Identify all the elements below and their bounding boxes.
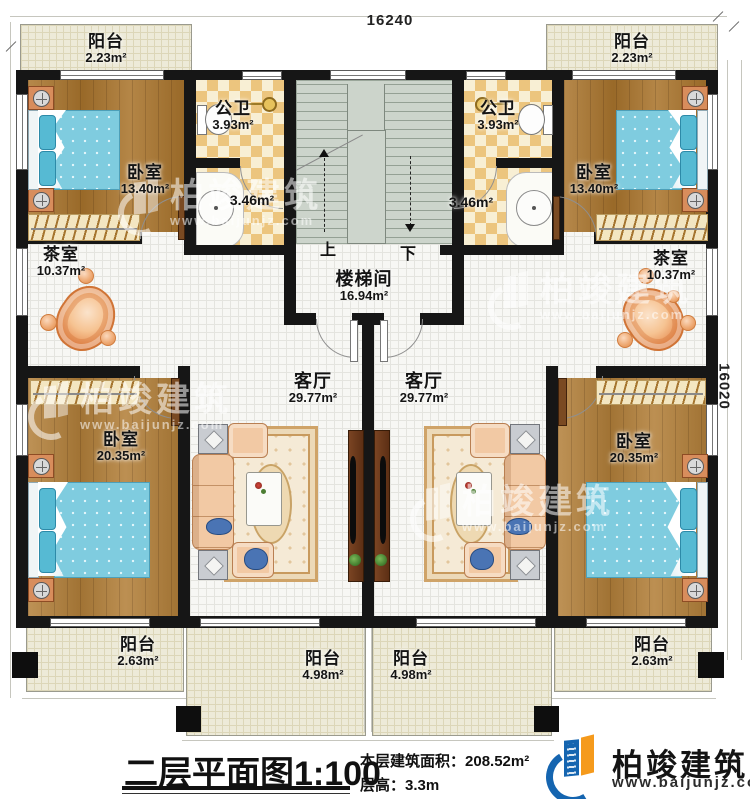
room-label-balcony-bcr: 阳台 4.98m² xyxy=(376,650,446,682)
sofa xyxy=(504,454,546,550)
eave-line-bottom-right xyxy=(548,698,716,699)
bed-headboard xyxy=(28,110,39,190)
room-label-balcony-tr: 阳台 2.23m² xyxy=(582,33,682,65)
bed-pillow xyxy=(680,531,697,573)
bed xyxy=(54,482,150,578)
room-label-balcony-bl: 阳台 2.63m² xyxy=(103,636,173,668)
nightstand xyxy=(682,578,708,602)
window-right-3 xyxy=(706,404,718,456)
tea-stone-pebble xyxy=(617,332,633,348)
room-label-bedroom-bl: 卧室 20.35m² xyxy=(84,431,158,463)
window-bath-left-top xyxy=(242,71,282,80)
nightstand xyxy=(28,86,54,110)
eave-line-bottom-center xyxy=(182,740,554,741)
tv xyxy=(380,456,386,544)
nightstand xyxy=(682,188,708,212)
window-left-1 xyxy=(16,94,28,170)
balcony-divider-center-b xyxy=(371,628,372,732)
door-leaf-entry-left xyxy=(350,320,358,362)
window-balcony-door-tr xyxy=(572,70,676,80)
door-leaf-bedroom-bl xyxy=(171,378,180,426)
window-living-l-balcony-door xyxy=(200,618,320,627)
dim-tick-top-right-2 xyxy=(729,21,740,32)
wardrobe xyxy=(28,214,140,241)
wall-bedroom-bl-top xyxy=(16,366,140,378)
bed-pillow xyxy=(39,151,56,186)
nightstand xyxy=(28,188,54,212)
room-label-balcony-br: 阳台 2.63m² xyxy=(617,636,687,668)
wall-stair-left xyxy=(284,70,296,325)
eave-line-right-2 xyxy=(741,60,742,660)
door-leaf-bedroom-br xyxy=(558,378,567,426)
tea-stone-pebble xyxy=(100,330,116,346)
wall-bedroom-br-left xyxy=(546,366,558,628)
wall-bath-right-bottom xyxy=(440,245,552,255)
nightstand xyxy=(28,454,54,478)
bed-pillow xyxy=(39,115,56,150)
brand-url: www.baijunjz.com xyxy=(612,774,750,791)
room-label-living-r: 客厅 29.77m² xyxy=(389,372,459,405)
wall-corridor-stub-right xyxy=(420,313,464,325)
wardrobe xyxy=(596,380,706,405)
floor-plan: 16240 16020 xyxy=(0,0,750,799)
window-bath-right-top xyxy=(466,71,506,80)
person-figure xyxy=(470,548,494,570)
sofa xyxy=(192,454,234,550)
room-label-bedroom-tr: 卧室 13.40m² xyxy=(556,164,632,196)
wall-bedroom-br-top xyxy=(596,366,718,378)
stair-flight-right xyxy=(384,84,453,242)
bed xyxy=(586,482,682,578)
eave-line-bottom-left xyxy=(22,698,190,699)
room-label-tea-l: 茶室 10.37m² xyxy=(18,246,104,278)
window-bedroom-br-bottom xyxy=(586,618,686,627)
tea-stone-pebble xyxy=(667,290,680,303)
bed-pillow xyxy=(680,488,697,530)
room-label-bedroom-tl: 卧室 13.40m² xyxy=(107,164,183,196)
basin-right xyxy=(516,190,552,226)
room-label-living-l: 客厅 29.77m² xyxy=(278,372,348,405)
door-leaf-entry-right xyxy=(380,320,388,362)
plant xyxy=(375,554,387,566)
nightstand xyxy=(682,454,708,478)
wall-bath-right-mid xyxy=(496,158,552,168)
bed-pillow xyxy=(39,488,56,530)
wall-bath-left-mid xyxy=(184,158,240,168)
eave-line-left xyxy=(10,22,11,698)
wall-bath-left-bottom xyxy=(184,245,296,255)
bed-headboard xyxy=(697,482,708,578)
dimension-right: 16020 xyxy=(716,349,733,425)
balcony-post-right xyxy=(698,652,724,678)
dimension-top: 16240 xyxy=(345,12,435,29)
side-table xyxy=(198,424,228,454)
title-underline-thin xyxy=(122,793,350,794)
brand-logo-icon xyxy=(546,734,606,796)
balcony-post-left xyxy=(12,652,38,678)
armchair xyxy=(228,423,268,458)
side-table xyxy=(510,550,540,580)
window-living-r-balcony-door xyxy=(416,618,536,627)
bed-headboard xyxy=(28,482,39,578)
tea-stone-pebble xyxy=(40,314,57,331)
door-leaf-bedroom-tl xyxy=(178,196,185,240)
window-balcony-door-tl xyxy=(60,70,164,80)
window-left-3 xyxy=(16,404,28,456)
floor-height-info: 层高：3.3m xyxy=(360,774,439,795)
tea-stone-pebble xyxy=(680,315,696,331)
room-label-tea-r: 茶室 10.37m² xyxy=(628,250,714,282)
plant xyxy=(349,554,361,566)
side-table xyxy=(510,424,540,454)
coffee-table xyxy=(456,472,492,526)
stair-flight-left xyxy=(296,84,348,242)
balcony-divider-center-a xyxy=(364,628,365,732)
stair-arrow-down-head xyxy=(405,224,415,237)
floor-area-info: 本层建筑面积：208.52m² xyxy=(360,750,529,771)
armchair xyxy=(470,423,510,458)
stair-arrow-up-head xyxy=(319,144,329,157)
bed-pillow xyxy=(680,115,697,150)
title-underline-thick xyxy=(122,786,350,790)
stair-down-label: 下 xyxy=(400,240,416,264)
person-figure xyxy=(506,518,532,535)
stair-up-label: 上 xyxy=(320,236,336,260)
person-figure xyxy=(244,548,268,570)
stair-arrow-up-line xyxy=(324,158,325,232)
room-label-balcony-bcl: 阳台 4.98m² xyxy=(288,650,358,682)
door-leaf-bedroom-tr xyxy=(553,196,560,240)
nightstand xyxy=(682,86,708,110)
balcony-post-center-left xyxy=(176,706,201,732)
bed-pillow xyxy=(680,151,697,186)
bed-headboard xyxy=(697,110,708,190)
room-label-wash-r: 3.46m² xyxy=(441,195,501,210)
window-stair-top xyxy=(330,70,406,80)
room-label-wash-l: 3.46m² xyxy=(222,193,282,208)
window-bedroom-bl-bottom xyxy=(50,618,150,627)
room-label-bedroom-br: 卧室 20.35m² xyxy=(597,433,671,465)
room-label-stairwell: 楼梯间 16.94m² xyxy=(316,270,412,303)
balcony-post-center-right xyxy=(534,706,559,732)
room-label-balcony-tl: 阳台 2.23m² xyxy=(56,33,156,65)
nightstand xyxy=(28,578,54,602)
wardrobe xyxy=(30,380,140,405)
tv xyxy=(350,456,356,544)
bed-pillow xyxy=(39,531,56,573)
side-table xyxy=(198,550,228,580)
room-label-bath-r: 公卫 3.93m² xyxy=(466,100,530,132)
coffee-table xyxy=(246,472,282,526)
person-figure xyxy=(206,518,232,535)
stair-landing xyxy=(347,130,386,244)
room-label-bath-l: 公卫 3.93m² xyxy=(201,100,265,132)
wardrobe xyxy=(596,214,708,241)
stair-arrow-down-line xyxy=(410,156,411,226)
wall-corridor-stub-left xyxy=(284,313,316,325)
dim-tick-top-left xyxy=(6,41,17,52)
